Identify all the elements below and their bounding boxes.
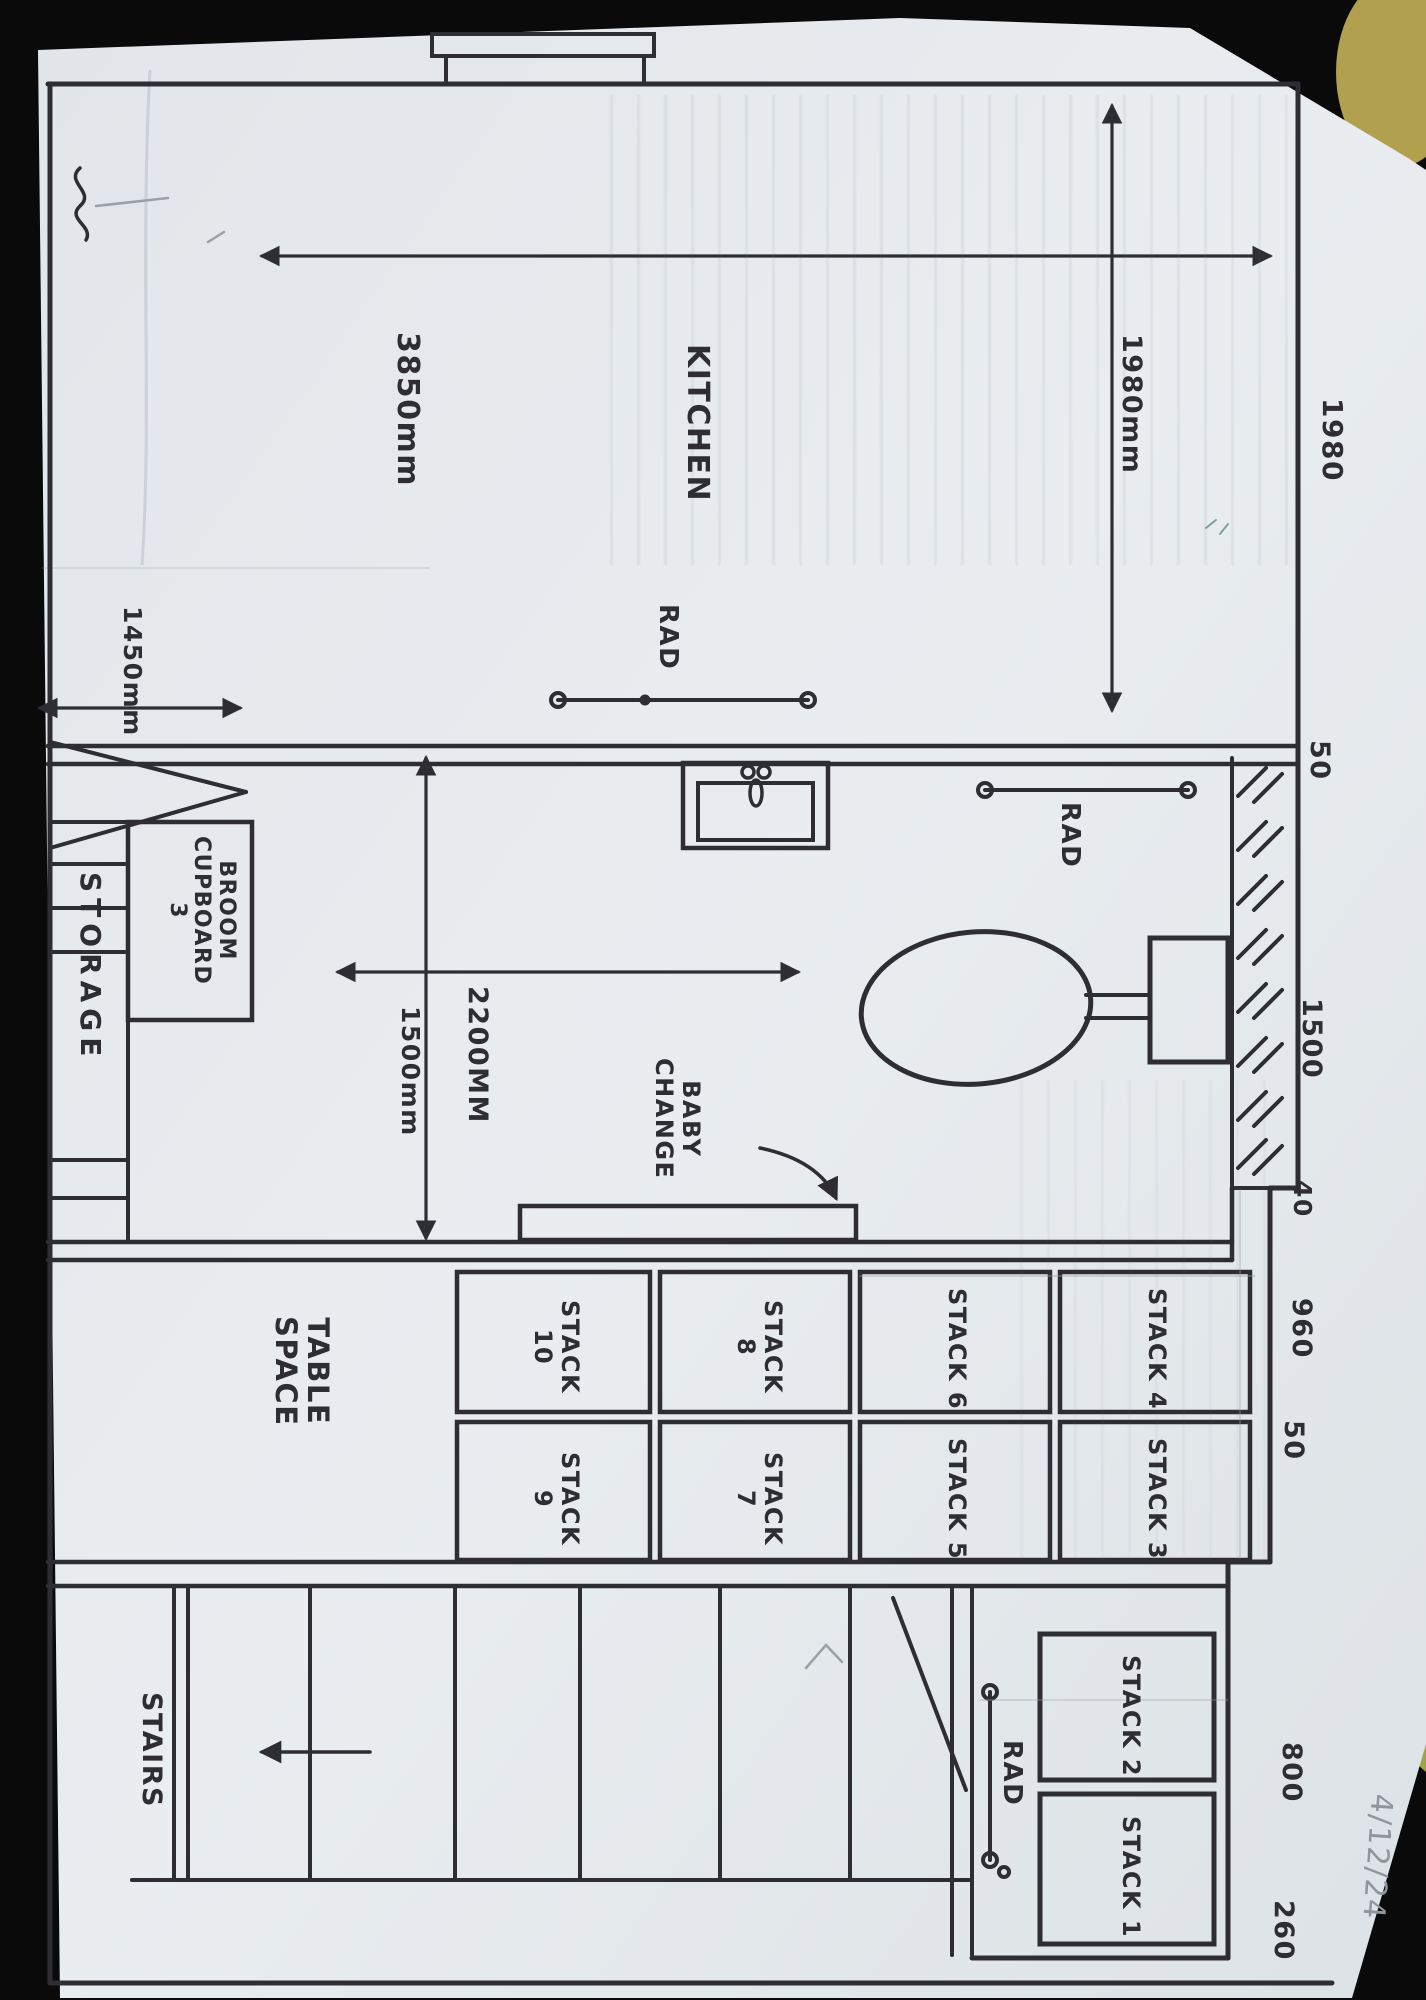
dim-1500mm-label: 1500mm	[396, 1006, 424, 1137]
stack-3-label: STACK 3	[1143, 1438, 1170, 1560]
photo-of-floor-plan: KITCHEN 3850mm 1980mm 1980 50 1500 40 96…	[0, 0, 1426, 2000]
stairs-label: STAIRS	[136, 1692, 166, 1808]
stack-4-label: STACK 4	[1143, 1288, 1170, 1410]
stack-1-label: STACK 1	[1117, 1816, 1144, 1938]
baby-change-label: BABY CHANGE	[650, 1058, 704, 1179]
dim-260-label: 260	[1268, 1900, 1298, 1961]
stack-8-label: STACK 8	[732, 1300, 786, 1394]
storage-label: STORAGE	[75, 872, 106, 1062]
dim-40-label: 40	[1288, 1180, 1316, 1218]
dim-2200-label: 2200MM	[462, 986, 492, 1124]
rad-stairs-label: RAD	[997, 1740, 1026, 1806]
floor-plan-sketch	[0, 0, 1426, 2000]
rad-bathroom-label: RAD	[1055, 802, 1084, 868]
dim-960-label: 960	[1286, 1298, 1316, 1359]
dim-50-a-label: 50	[1304, 740, 1334, 781]
dim-1500-label: 1500	[1296, 998, 1326, 1079]
broom-cupboard-label: BROOM CUPBOARD 3	[164, 836, 238, 985]
stack-9-label: STACK 9	[529, 1452, 583, 1546]
rad-kitchen-label: RAD	[653, 604, 682, 670]
dim-800-label: 800	[1276, 1742, 1306, 1803]
table-space-label: TABLE SPACE	[269, 1316, 334, 1427]
dim-3850-label: 3850mm	[390, 332, 424, 487]
dim-1450-label: 1450mm	[118, 606, 146, 737]
kitchen-label: KITCHEN	[680, 344, 714, 502]
dim-1980mm-label: 1980mm	[1116, 334, 1146, 474]
dim-1980-total-label: 1980	[1317, 398, 1348, 482]
stack-6-label: STACK 6	[943, 1288, 970, 1410]
dim-50-b-label: 50	[1278, 1420, 1308, 1461]
stack-7-label: STACK 7	[732, 1452, 786, 1546]
stack-2-label: STACK 2	[1117, 1655, 1144, 1777]
stack-10-label: STACK 10	[529, 1300, 583, 1394]
stack-5-label: STACK 5	[943, 1438, 970, 1560]
paper	[38, 18, 1426, 1998]
